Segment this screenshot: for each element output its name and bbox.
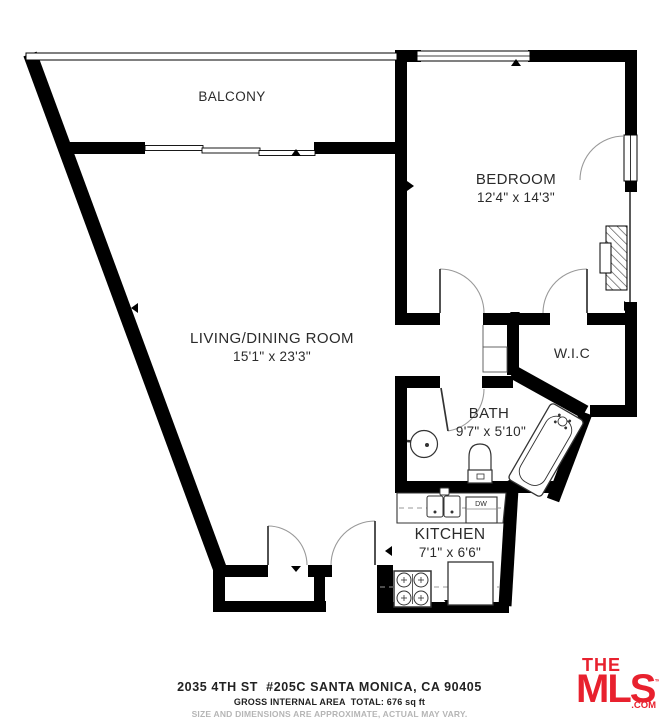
bedroom-right-door — [580, 136, 624, 180]
balcony-sliding-door — [145, 146, 315, 156]
room-dims-bedroom: 12'4" x 14'3" — [477, 190, 555, 205]
fridge-icon — [448, 562, 493, 605]
closet-hatch-icon — [600, 226, 627, 290]
floor-plan: DW BALCONY BEDROOM 12'4" x 14'3" LIVING/… — [0, 0, 659, 648]
room-dims-kitchen: 7'1" x 6'6" — [419, 545, 481, 560]
balcony-railing — [26, 53, 397, 60]
room-dims-bath: 9'7" x 5'10" — [456, 424, 526, 439]
address-line: 2035 4TH ST #205C SANTA MONICA, CA 90405 — [0, 680, 659, 694]
bedroom-window — [417, 51, 530, 61]
room-label-wic: W.I.C — [554, 345, 590, 361]
toilet-icon — [468, 444, 492, 483]
room-label-kitchen: KITCHEN — [415, 526, 486, 543]
room-label-living-dining: LIVING/DINING ROOM — [190, 330, 354, 347]
bedroom-right-door-leaf — [624, 135, 637, 181]
entry-door — [331, 521, 375, 565]
windows — [26, 51, 637, 181]
hallway-step — [483, 325, 507, 372]
area-line: GROSS INTERNAL AREA TOTAL: 676 sq ft — [0, 697, 659, 707]
bathroom-sink-icon — [407, 431, 438, 458]
closet-door — [268, 526, 307, 565]
trademark-symbol: ™ — [654, 679, 659, 686]
room-dims-living-dining: 15'1" x 23'3" — [233, 349, 311, 364]
stove-icon — [394, 571, 431, 607]
dishwasher-icon: DW — [466, 497, 497, 523]
disclaimer-line: SIZE AND DIMENSIONS ARE APPROXIMATE, ACT… — [0, 709, 659, 719]
mls-logo: THE MLS™ .COM — [576, 656, 656, 714]
room-label-balcony: BALCONY — [198, 89, 265, 104]
dishwasher-label: DW — [475, 501, 487, 508]
bedroom-door — [440, 269, 484, 313]
room-label-bedroom: BEDROOM — [476, 171, 556, 188]
room-label-bath: BATH — [469, 405, 510, 422]
wic-door — [543, 269, 587, 313]
floor-plan-page: DW BALCONY BEDROOM 12'4" x 14'3" LIVING/… — [0, 0, 659, 720]
mls-logo-com: .COM — [631, 700, 656, 711]
